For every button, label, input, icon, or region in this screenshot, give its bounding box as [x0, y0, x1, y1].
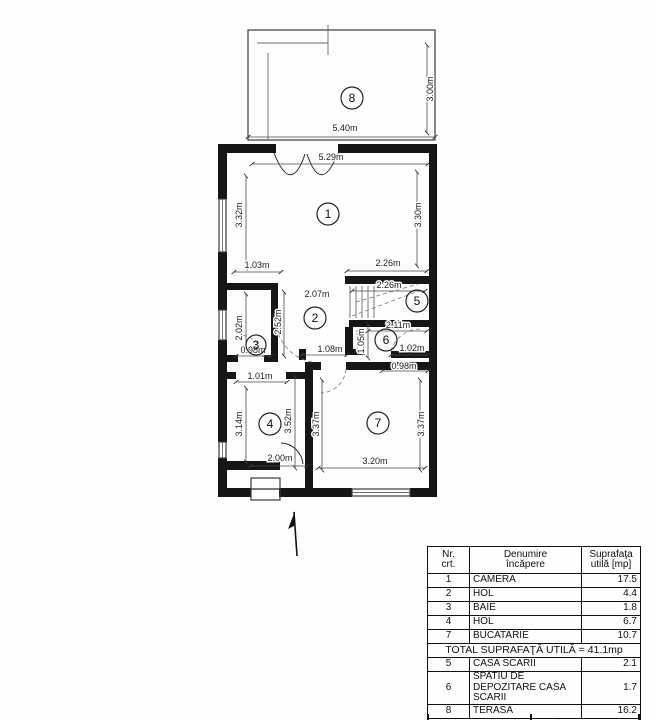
dimension-label: 1.05m: [356, 328, 366, 353]
room-number-cell: 8: [428, 704, 470, 718]
room-number-cell: 3: [428, 602, 470, 616]
room-name-cell: HOL: [470, 588, 582, 602]
room-number: 4: [267, 417, 274, 431]
dimension-label: 5.29m: [318, 152, 343, 162]
dimension-label: 3.30m: [413, 202, 423, 227]
room-number: 7: [375, 416, 382, 430]
dimension-label: 3.37m: [416, 411, 426, 436]
dimension-label: 1.02m: [399, 343, 424, 353]
table-row: 2 HOL 4.4: [428, 588, 641, 602]
room-number: 2: [312, 311, 319, 325]
room-name-cell: SPATIU DE DEPOZITARE CASA SCARII: [470, 672, 582, 705]
header-line: crt.: [442, 559, 456, 570]
room-name-cell: BUCATARIE: [470, 630, 582, 644]
table-row: 3 BAIE 1.8: [428, 602, 641, 616]
table-row: 7 BUCATARIE 10.7: [428, 630, 641, 644]
entrance-steps: [251, 478, 280, 500]
header-line: Suprafaţa: [589, 549, 632, 560]
room-marker-1: 1: [317, 203, 339, 225]
total-util-row: TOTAL SUPRAFAŢĂ UTILĂ = 41.1mp: [428, 644, 641, 658]
room-marker-4: 4: [259, 413, 281, 435]
room-number: 6: [383, 333, 390, 347]
room-area-cell: 1.8: [582, 602, 641, 616]
dimension-label: 2.07m: [304, 289, 329, 299]
dimension-label: 1.01m: [247, 371, 272, 381]
room-area-cell: 10.7: [582, 630, 641, 644]
dimension-label: 5.40m: [332, 123, 357, 133]
entrance-arrow-icon: [288, 511, 297, 556]
room-name-cell: HOL: [470, 616, 582, 630]
table-cut-edge: [530, 714, 532, 720]
room-name-cell: CASA SCARII: [470, 658, 582, 672]
room-name-cell: TERASA: [470, 704, 582, 718]
header-line: încăpere: [506, 559, 545, 570]
room-number-cell: 5: [428, 658, 470, 672]
table-row: 1 CAMERA 17.5: [428, 574, 641, 588]
floor-plan-sheet: 5.40m 3.00m 5.29m 3.32m 3.30m 1.03m 2.26…: [0, 0, 653, 720]
dimension-lines: [234, 45, 435, 470]
room-marker-8: 8: [341, 87, 363, 109]
dimension-label: 1.08m: [317, 344, 342, 354]
dimension-label: 2.02m: [234, 315, 244, 340]
dimension-label: 3.52m: [283, 408, 293, 433]
room-number: 1: [325, 207, 332, 221]
header-line: utilă [mp]: [591, 559, 632, 570]
room-area-cell: 6.7: [582, 616, 641, 630]
room-name-cell: BAIE: [470, 602, 582, 616]
dimension-label: 0.98m: [391, 361, 416, 371]
room-name-cell: CAMERA: [470, 574, 582, 588]
table-row: 5 CASA SCARII 2.1: [428, 658, 641, 672]
dimension-label: 3.00m: [425, 76, 435, 101]
room-number-cell: 7: [428, 630, 470, 644]
dimension-label: 2.11m: [386, 320, 410, 330]
room-marker-2: 2: [304, 307, 326, 329]
header-line: Nr.: [442, 549, 455, 560]
room-area-cell: 4.4: [582, 588, 641, 602]
table-cut-edge: [427, 714, 429, 720]
table-row: 4 HOL 6.7: [428, 616, 641, 630]
room-area-cell: 16.2: [582, 704, 641, 718]
room-area-cell: 1.7: [582, 672, 641, 705]
room-number: 3: [253, 338, 260, 352]
room-number: 5: [414, 294, 421, 308]
room-number: 8: [349, 91, 356, 105]
header-line: Denumire: [504, 549, 547, 560]
area-table: Nr. crt. Denumire încăpere Suprafaţa uti…: [427, 546, 641, 720]
col-header-nr: Nr. crt.: [428, 547, 470, 574]
dimension-label: 2.52m: [273, 309, 283, 334]
room-marker-6: 6: [375, 329, 397, 351]
table-cut-edge: [638, 714, 640, 720]
dimension-label: 3.20m: [362, 456, 387, 466]
room-number-cell: 1: [428, 574, 470, 588]
dimension-label: 3.32m: [234, 202, 244, 227]
room-number-cell: 2: [428, 588, 470, 602]
room-marker-7: 7: [367, 412, 389, 434]
col-header-area: Suprafaţa utilă [mp]: [582, 547, 641, 574]
table-row: 6 SPATIU DE DEPOZITARE CASA SCARII 1.7: [428, 672, 641, 705]
room-marker-5: 5: [406, 290, 428, 312]
room-number-cell: 4: [428, 616, 470, 630]
dimension-label: 3.14m: [234, 411, 244, 436]
table-header-row: Nr. crt. Denumire încăpere Suprafaţa uti…: [428, 547, 641, 574]
dimension-label: 2.26m: [375, 258, 400, 268]
col-header-name: Denumire încăpere: [470, 547, 582, 574]
dimension-label: 3.37m: [311, 411, 321, 436]
room-markers: 1 2 3 4 5 6 7 8: [246, 87, 428, 435]
room-number-cell: 6: [428, 672, 470, 705]
total-util-label: TOTAL SUPRAFAŢĂ UTILĂ = 41.1mp: [428, 644, 641, 658]
dimension-label: 1.03m: [244, 260, 269, 270]
dimension-label: 2.26m: [376, 280, 401, 290]
room-area-cell: 2.1: [582, 658, 641, 672]
table-row: 8 TERASA 16.2: [428, 704, 641, 718]
room-area-cell: 17.5: [582, 574, 641, 588]
dimension-label: 2.00m: [267, 453, 292, 463]
